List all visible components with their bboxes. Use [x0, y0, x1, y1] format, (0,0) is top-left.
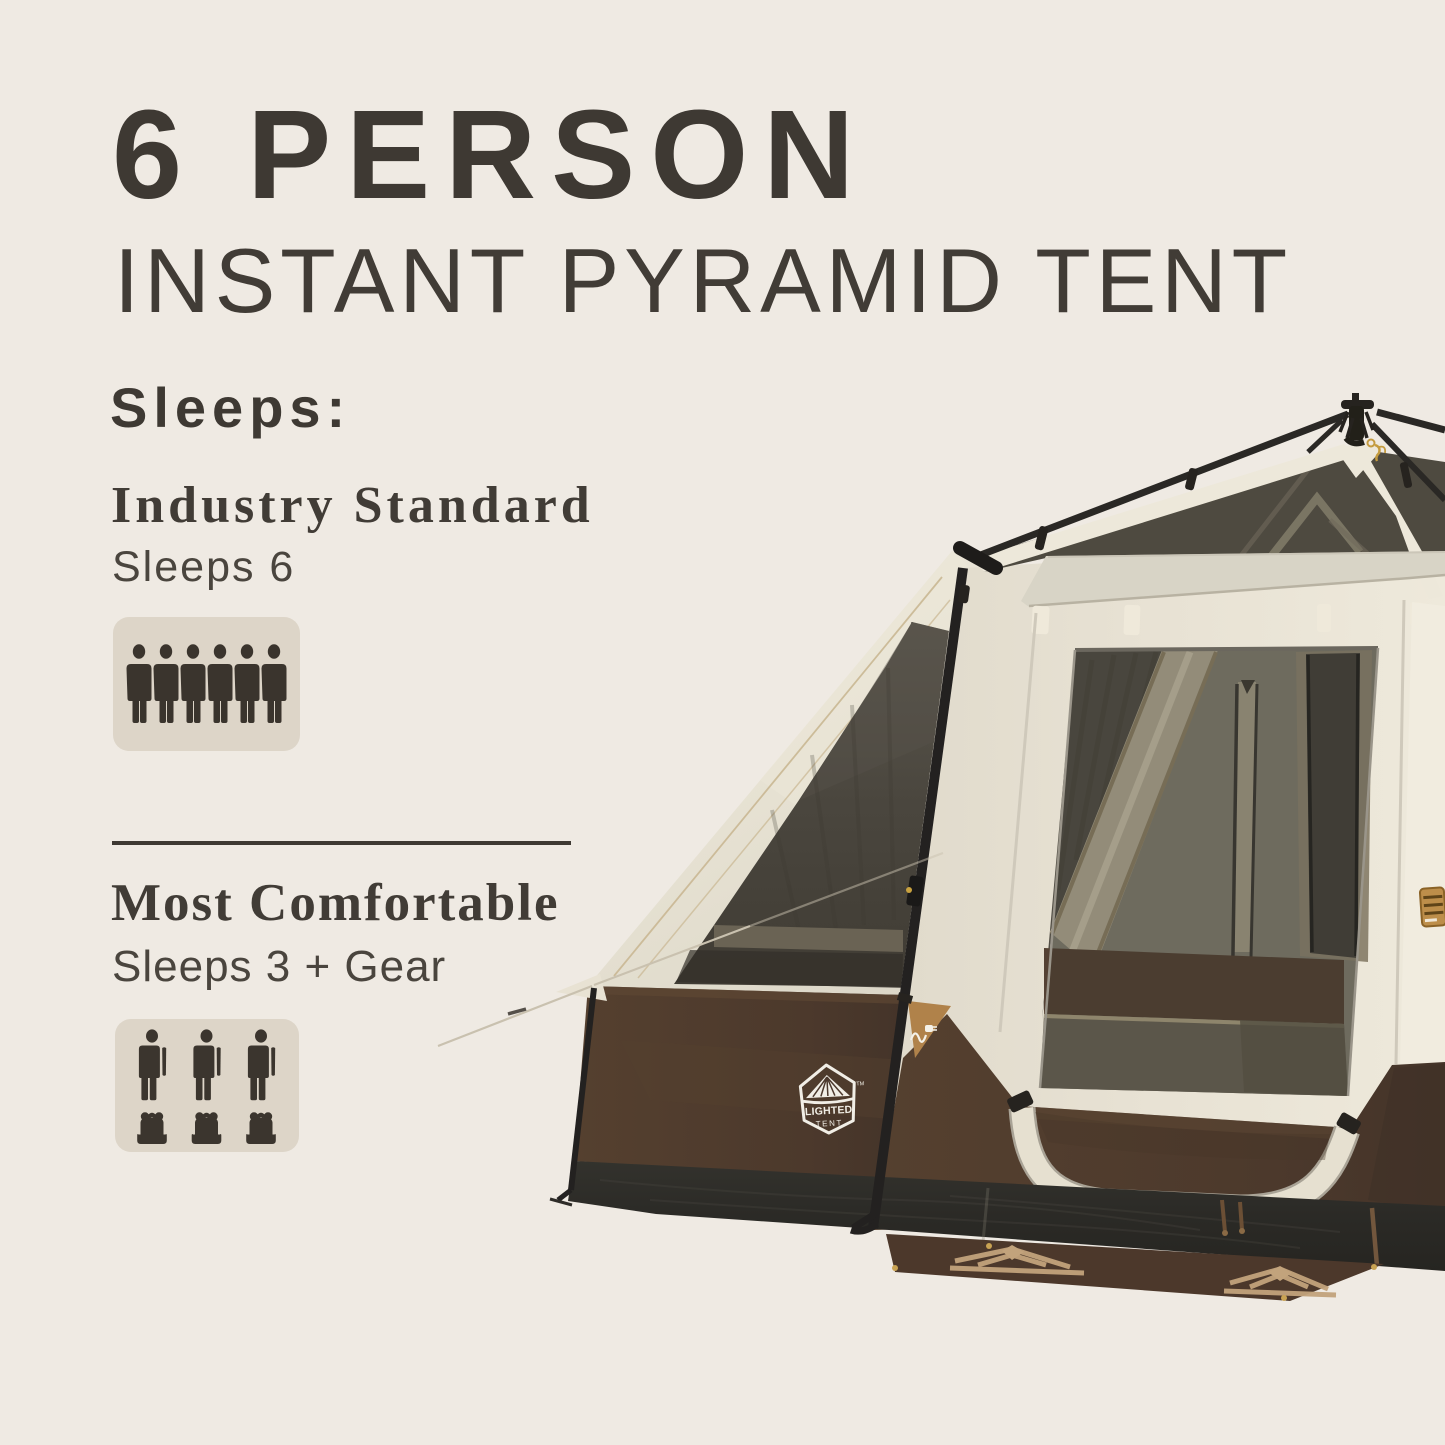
svg-text:TENT: TENT [815, 1118, 843, 1128]
svg-text:LIGHTED: LIGHTED [805, 1104, 853, 1118]
svg-text:TM: TM [856, 1081, 865, 1087]
